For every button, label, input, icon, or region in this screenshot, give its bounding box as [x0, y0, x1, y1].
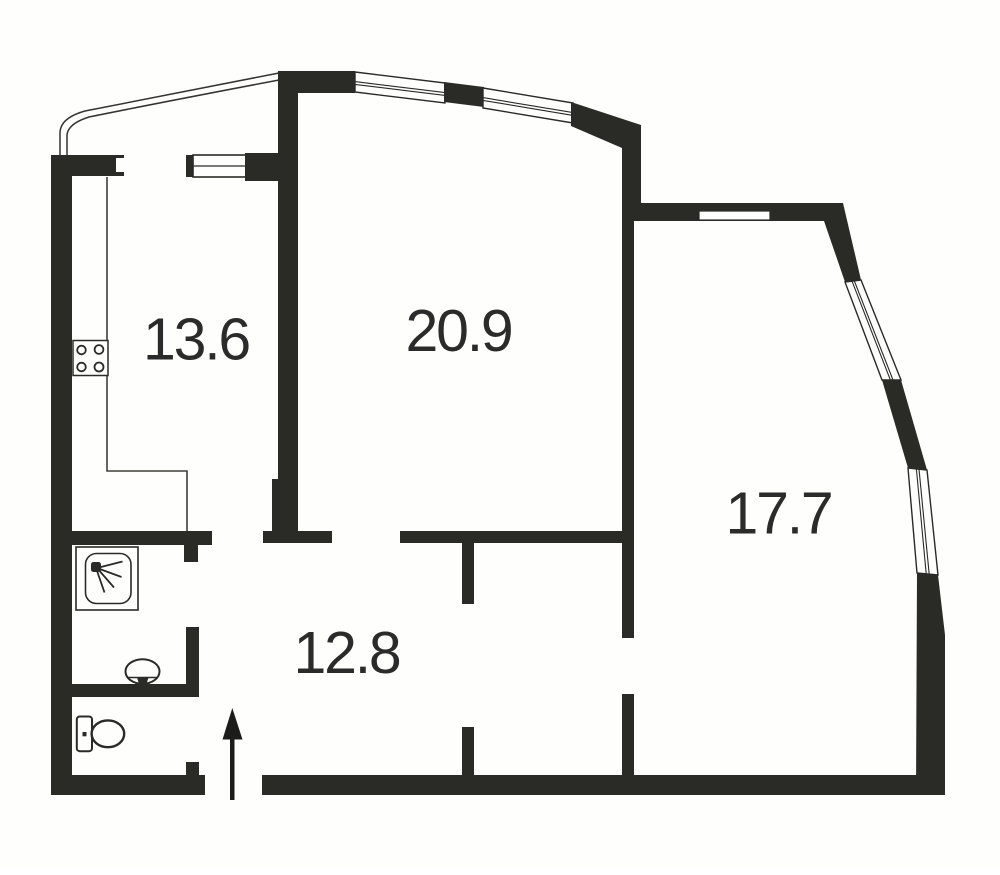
svg-text:13.6: 13.6 [143, 307, 249, 373]
svg-text:12.8: 12.8 [293, 620, 399, 686]
svg-text:20.9: 20.9 [405, 298, 511, 364]
svg-text:17.7: 17.7 [725, 481, 831, 547]
